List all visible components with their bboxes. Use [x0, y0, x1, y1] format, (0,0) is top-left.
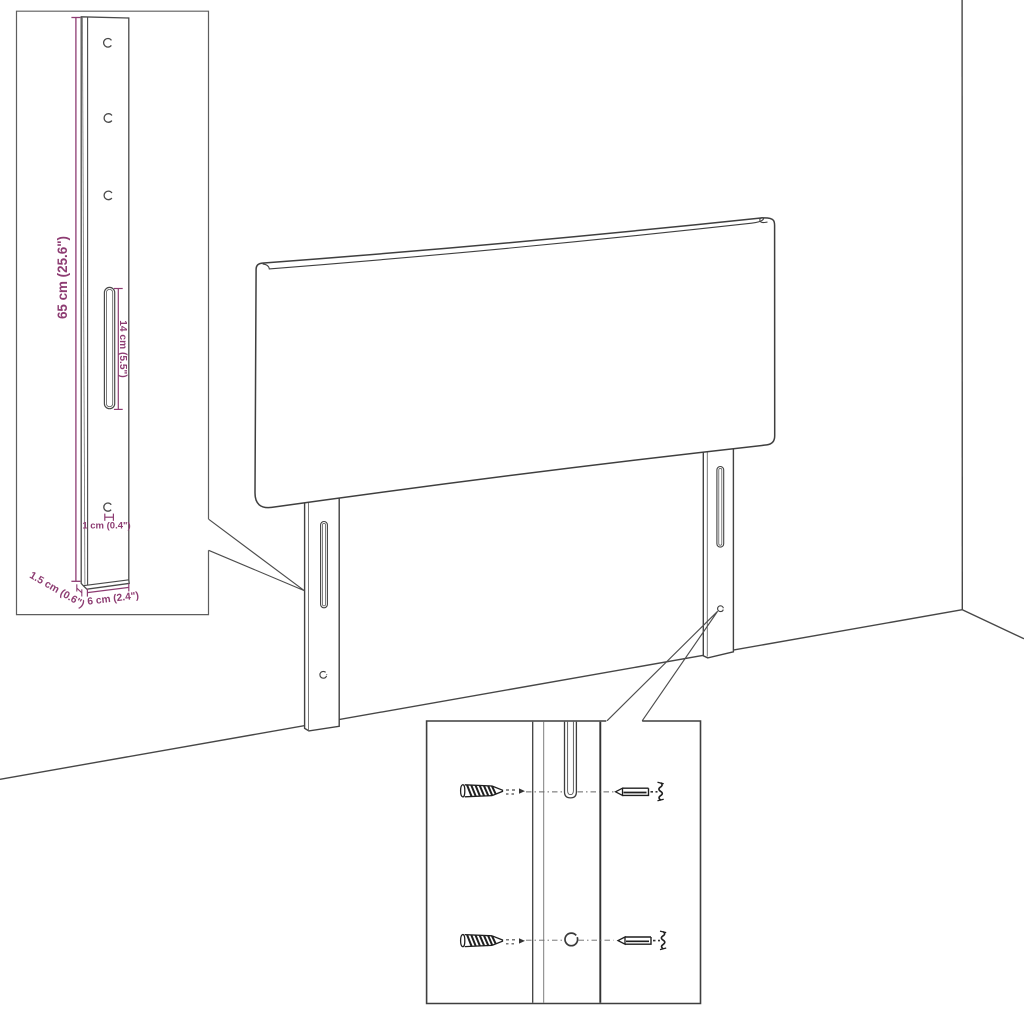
svg-text:1 cm (0.4"): 1 cm (0.4")	[82, 520, 130, 531]
svg-text:14 cm (5.5"): 14 cm (5.5")	[117, 320, 128, 378]
svg-text:65 cm (25.6"): 65 cm (25.6")	[55, 236, 70, 319]
